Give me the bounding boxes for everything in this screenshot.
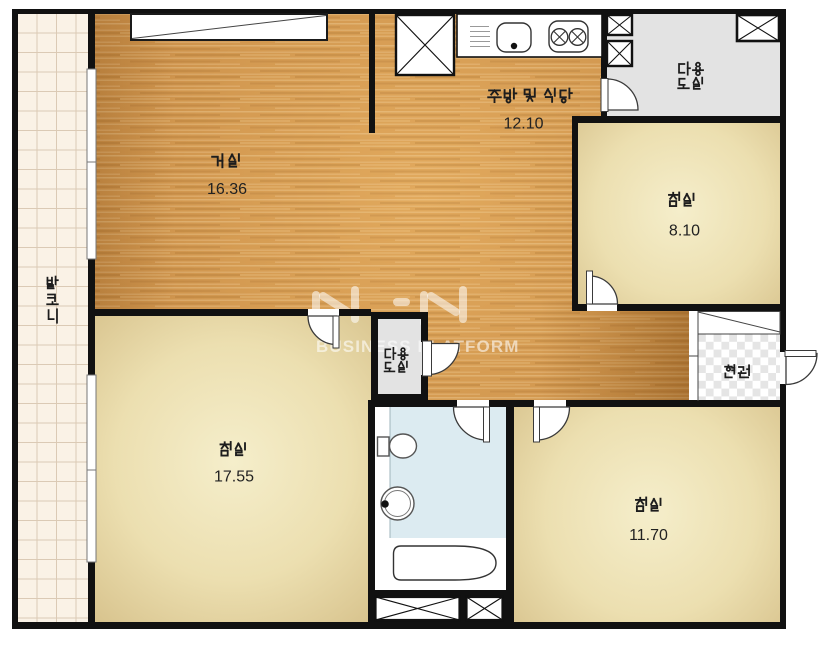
- svg-text:17.55: 17.55: [214, 469, 254, 486]
- svg-text:8.10: 8.10: [669, 223, 700, 240]
- svg-text:BUSINESS PLATFORM: BUSINESS PLATFORM: [316, 337, 520, 356]
- svg-text:11.70: 11.70: [629, 527, 668, 544]
- svg-text:16.36: 16.36: [207, 181, 247, 198]
- svg-text:12.10: 12.10: [503, 116, 543, 133]
